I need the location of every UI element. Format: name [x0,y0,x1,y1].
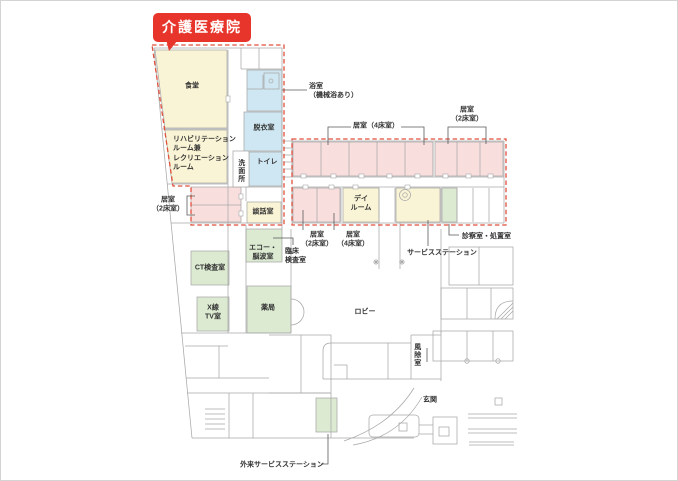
label-room4-top: 居室（4床室） [351,121,401,130]
label-bath-room: 浴室 （機械浴あり） [309,82,358,101]
label-toilet: トイレ [257,157,278,166]
label-outpatient-station: 外来サービスステーション [240,460,324,469]
label-echo-room: エコー・ 脳波室 [249,244,277,263]
label-rehab-room: リハビリテーション ルーム兼 レクリエーション ルーム [173,135,236,173]
label-service-station: サービスステーション [407,248,477,257]
room-mid-row-area [293,188,340,222]
room2-left-area [191,187,241,222]
label-exam-room: 診察室・処置室 [462,232,511,241]
label-undress-room: 脱衣室 [254,123,275,132]
label-lobby: ロビー [355,307,376,316]
label-room4-mid: 居室 （4床室） [337,231,369,250]
label-xray-room: X線 TV室 [205,304,221,323]
label-dining-room: 食堂 [185,81,199,90]
label-pharmacy: 薬局 [261,303,275,312]
bath-room-area [247,70,282,111]
label-room2-left: 居室 （2床室） [152,196,184,215]
label-washroom: 洗面所 [236,159,245,183]
facility-title-badge: 介護医療院 [153,13,251,42]
facility-title-text: 介護医療院 [162,19,242,35]
label-ct-room: CT検査室 [195,263,225,272]
label-lounge: 談話室 [253,207,274,216]
label-dayroom: デイ ルーム [351,195,372,214]
label-windbreak-room: 風除室 [412,343,421,367]
room2-top-row-area [435,142,503,176]
exam-room-area [442,188,457,222]
label-clinical-lab: 臨床 検査室 [285,247,306,266]
room4-top-row-area [293,142,433,176]
service-station-area [396,188,440,222]
label-room2-top: 居室 （2床室） [449,106,485,125]
outpatient-station-area [316,398,337,432]
plant-icon [373,259,379,265]
label-entrance: 玄関 [423,395,437,404]
floorplan-canvas: 介護医療院 食堂 リハビリテーション ルーム兼 レクリエーション ルーム 居室 … [0,0,678,481]
